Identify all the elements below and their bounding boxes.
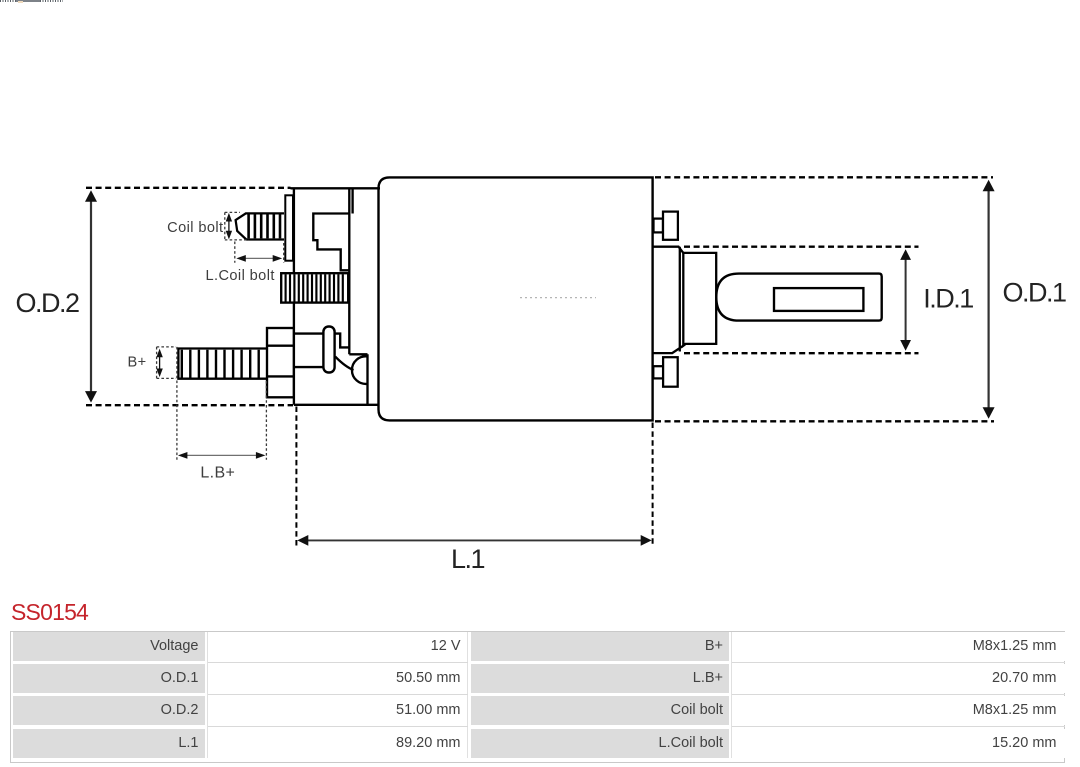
svg-text:B+: B+ xyxy=(127,355,146,371)
svg-text:L.B+: L.B+ xyxy=(200,465,235,482)
svg-text:L.Coil bolt: L.Coil bolt xyxy=(206,268,275,284)
svg-text:O.D.1: O.D.1 xyxy=(1002,277,1066,307)
svg-text:O.D.2: O.D.2 xyxy=(15,288,79,318)
svg-text:Coil bolt: Coil bolt xyxy=(167,220,223,236)
svg-text:L.1: L.1 xyxy=(451,544,485,574)
svg-text:I.D.1: I.D.1 xyxy=(923,283,973,313)
